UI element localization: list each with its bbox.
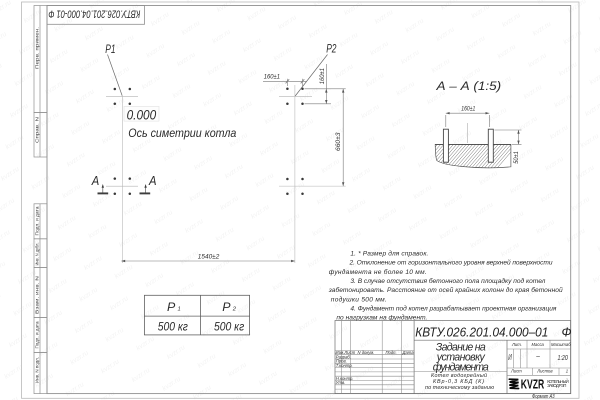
svg-text:А: А: [148, 173, 156, 188]
svg-text:P1: P1: [105, 43, 115, 56]
svg-text:3. В случае отсутствия бетонно: 3. В случае отсутствия бетонного пола пл…: [350, 277, 545, 285]
svg-text:KVZR: KVZR: [521, 378, 545, 392]
svg-text:–: –: [535, 353, 540, 360]
svg-text:А – А (1:5): А – А (1:5): [435, 79, 501, 93]
svg-text:Взам. инв. N: Взам. инв. N: [35, 276, 40, 314]
svg-text:0.000: 0.000: [127, 107, 157, 122]
svg-text:1540±2: 1540±2: [198, 253, 220, 260]
svg-text:забетонировать. Расстояние от: забетонировать. Расстояние от осей крайн…: [328, 286, 563, 294]
svg-text:КВТУ.026.201.04.000–01: КВТУ.026.201.04.000–01: [415, 325, 548, 339]
svg-text:Масса: Масса: [532, 342, 545, 347]
svg-text:Ф: Ф: [562, 326, 572, 340]
svg-text:4. Фундамент под котел разраба: 4. Фундамент под котел разрабатывает про…: [350, 305, 556, 313]
svg-text:2. Отклонение от горизонтально: 2. Отклонение от горизонтального уровня …: [349, 259, 553, 267]
svg-text:по техническому заданию: по техническому заданию: [425, 385, 494, 391]
svg-text:1: 1: [178, 306, 181, 312]
svg-text:Справ. N: Справ. N: [35, 117, 40, 143]
svg-text:Инв. N подл.: Инв. N подл.: [35, 357, 40, 383]
svg-text:160±1: 160±1: [461, 106, 475, 113]
svg-text:Котел водогрейный: Котел водогрейный: [431, 372, 487, 379]
svg-text:1. * Размер для справок.: 1. * Размер для справок.: [350, 249, 428, 257]
svg-text:Формат А3: Формат А3: [532, 394, 555, 400]
svg-text:Лит.: Лит.: [511, 342, 522, 347]
svg-text:ЗАВОД РЭП: ЗАВОД РЭП: [547, 383, 566, 388]
svg-text:Инв. N дубл.: Инв. N дубл.: [35, 243, 40, 266]
svg-text:1:20: 1:20: [558, 355, 568, 362]
svg-text:Подп.: Подп.: [386, 350, 397, 355]
svg-text:Ось симетрии котла: Ось симетрии котла: [128, 127, 237, 140]
svg-text:фундамента: фундамента: [433, 361, 489, 373]
svg-text:1: 1: [566, 369, 568, 374]
svg-text:Р: Р: [222, 300, 231, 314]
svg-text:P2: P2: [326, 43, 337, 56]
svg-text:Т.контр.: Т.контр.: [336, 363, 353, 368]
svg-text:Р: Р: [167, 300, 176, 314]
svg-text:Подп. и дата: Подп. и дата: [35, 206, 40, 235]
svg-text:подушки 500 мм.: подушки 500 мм.: [331, 295, 387, 303]
svg-text:Подп. и дата: Подп. и дата: [35, 321, 40, 348]
svg-text:КВТУ.026.201.04.000-01 Ф: КВТУ.026.201.04.000-01 Ф: [48, 8, 140, 20]
svg-text:160±1: 160±1: [264, 74, 280, 81]
svg-text:И: И: [508, 353, 512, 362]
svg-text:500 кг: 500 кг: [158, 320, 188, 334]
svg-text:N докум.: N докум.: [358, 350, 375, 355]
svg-text:Масштаб: Масштаб: [551, 342, 571, 347]
svg-text:Перв. примен.: Перв. примен.: [35, 27, 40, 69]
svg-text:660±3: 660±3: [335, 132, 342, 151]
svg-text:фундамента не более 10 мм.: фундамента не более 10 мм.: [329, 268, 427, 276]
svg-text:Лист: Лист: [510, 369, 522, 374]
svg-text:Дата: Дата: [402, 350, 415, 355]
svg-text:160±1: 160±1: [319, 68, 326, 84]
svg-text:50±1: 50±1: [513, 151, 520, 164]
svg-text:А: А: [91, 173, 99, 188]
svg-text:500 кг: 500 кг: [214, 320, 244, 334]
svg-text:Утв.: Утв.: [336, 380, 346, 385]
svg-text:Листов: Листов: [536, 369, 553, 374]
